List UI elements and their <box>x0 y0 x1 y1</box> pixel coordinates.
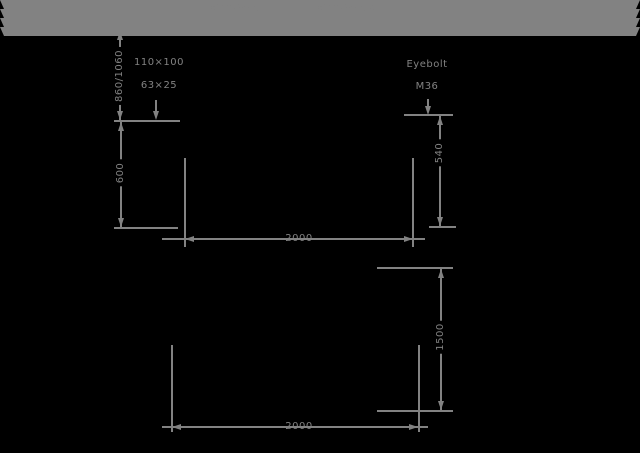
lug-right-bracket-line <box>314 14 378 16</box>
dim-lift-height-label: 860/1060 <box>114 47 126 105</box>
arrowhead-up-icon <box>118 122 124 131</box>
lug-right-bracket-drop <box>313 14 315 19</box>
cable-block-label-line2: 63×25 <box>141 81 177 91</box>
dim-right-height-label: 540 <box>434 140 446 167</box>
lug-right-label: φ36(GB825)-2 <box>318 4 375 12</box>
arrowhead-right-icon <box>404 236 413 242</box>
lug-left-label: φ36(GB825) <box>211 4 260 12</box>
extension-line <box>184 158 186 247</box>
cable-block-label-line1: 110×100 <box>134 58 184 68</box>
dim-right-height-line <box>439 115 441 227</box>
eyebolt-shank <box>309 18 312 32</box>
arrowhead-left-icon <box>185 236 194 242</box>
arrowhead-down-icon <box>438 401 444 410</box>
arrowhead-up-icon <box>117 31 123 40</box>
lug-left-bracket-line <box>206 14 263 16</box>
eyebolt-arrowhead-icon <box>0 18 640 27</box>
dim-left-height-label: 600 <box>115 160 127 187</box>
dim-plan-depth-label: 1500 <box>435 320 447 353</box>
base-tick-right <box>429 226 456 228</box>
eyebolt-shank <box>205 18 208 32</box>
mount-surface-line-right <box>404 114 453 116</box>
body-top-edge-line <box>114 30 206 32</box>
technical-drawing-canvas: 860/1060 600 110×100 63×25 φ36(GB825) φ3… <box>0 0 640 453</box>
arrowhead-down-icon <box>437 217 443 226</box>
arrowhead-down-icon <box>118 218 124 227</box>
arrowhead-left-icon <box>172 424 181 430</box>
base-line-left <box>114 227 178 229</box>
eyebolt-block-label-line1: Eyebolt <box>406 60 447 70</box>
eyebolt-shank <box>259 18 262 32</box>
eyebolt-block-label-line2: M36 <box>416 82 439 92</box>
extension-line <box>418 345 420 432</box>
eyebolt-shank <box>378 18 381 32</box>
arrowhead-up-icon <box>438 269 444 278</box>
extension-line <box>412 158 414 247</box>
extension-line <box>171 345 173 432</box>
arrowhead-down-icon <box>117 111 123 120</box>
eyebolt-arrowhead-icon <box>0 27 640 36</box>
leader-line <box>427 99 429 106</box>
arrowhead-up-icon <box>437 116 443 125</box>
leader-arrowhead-icon <box>153 111 159 120</box>
front-view: 860/1060 600 110×100 63×25 φ36(GB825) φ3… <box>0 0 640 36</box>
dim-plan-width-label: 2000 <box>285 422 312 432</box>
leader-line <box>155 100 157 111</box>
dim-front-width-label: 2000 <box>285 234 312 244</box>
arrowhead-right-icon <box>409 424 418 430</box>
